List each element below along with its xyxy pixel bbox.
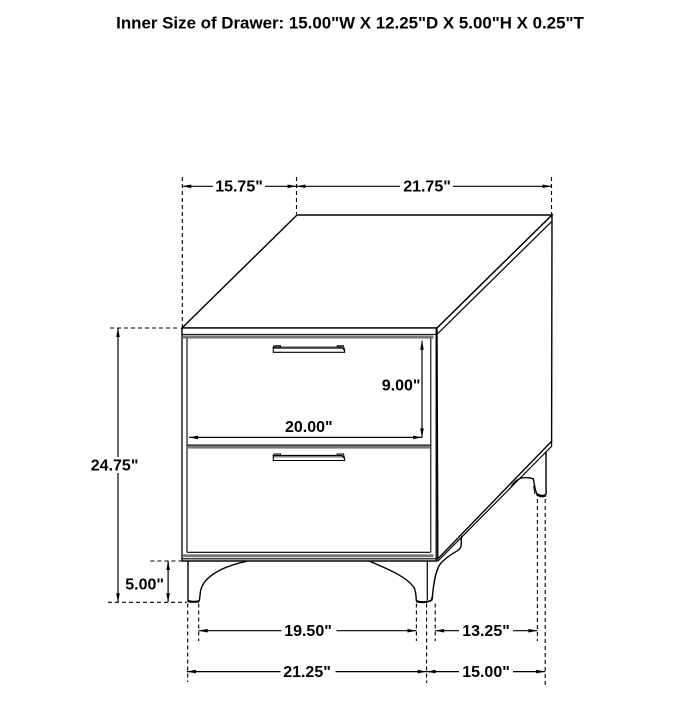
svg-text:Inner Size of Drawer: 15.00"W: Inner Size of Drawer: 15.00"W X 12.25"D …: [116, 14, 584, 33]
svg-text:21.25": 21.25": [283, 664, 331, 681]
svg-text:21.75": 21.75": [403, 179, 451, 196]
svg-text:19.50": 19.50": [284, 623, 332, 640]
svg-text:20.00": 20.00": [285, 419, 333, 436]
svg-text:15.75": 15.75": [215, 179, 263, 196]
svg-text:9.00": 9.00": [382, 378, 421, 395]
svg-text:24.75": 24.75": [91, 458, 139, 475]
svg-text:15.00": 15.00": [462, 664, 510, 681]
svg-text:13.25": 13.25": [462, 623, 510, 640]
svg-text:5.00": 5.00": [125, 577, 164, 594]
